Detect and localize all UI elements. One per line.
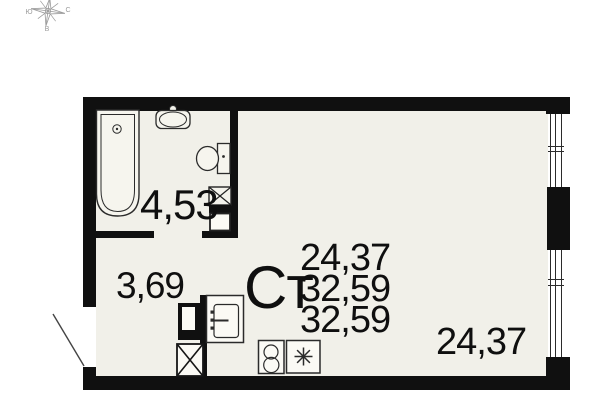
entrance-door-leaf bbox=[53, 314, 84, 366]
window-top bbox=[548, 114, 564, 187]
floor-plan: Ю С В 4,53 3,69 Ст 24,37 32,59 32,59 24,… bbox=[0, 0, 605, 403]
appliance-box bbox=[287, 341, 321, 374]
area-stack-line-3: 32,59 bbox=[300, 305, 390, 336]
bathroom-area-label: 4,53 bbox=[140, 184, 218, 226]
compass-letter-right: С bbox=[65, 7, 70, 14]
area-stack: 24,37 32,59 32,59 bbox=[300, 243, 390, 336]
living-area-label: 24,37 bbox=[436, 323, 526, 361]
wash-basin bbox=[156, 106, 190, 129]
kitchen-sink bbox=[207, 296, 244, 343]
toilet bbox=[197, 144, 231, 174]
hallway-area-label: 3,69 bbox=[116, 267, 184, 304]
kitchen-vent-shaft-icon bbox=[177, 344, 203, 376]
asterisk-icon bbox=[295, 348, 313, 366]
compass-rose-icon: Ю С В bbox=[25, 0, 70, 33]
compass-letter-bottom: В bbox=[45, 26, 50, 33]
compass-letter-left: Ю bbox=[25, 9, 32, 16]
window-bottom bbox=[548, 250, 564, 357]
stove bbox=[259, 341, 285, 374]
bathtub bbox=[97, 110, 140, 216]
